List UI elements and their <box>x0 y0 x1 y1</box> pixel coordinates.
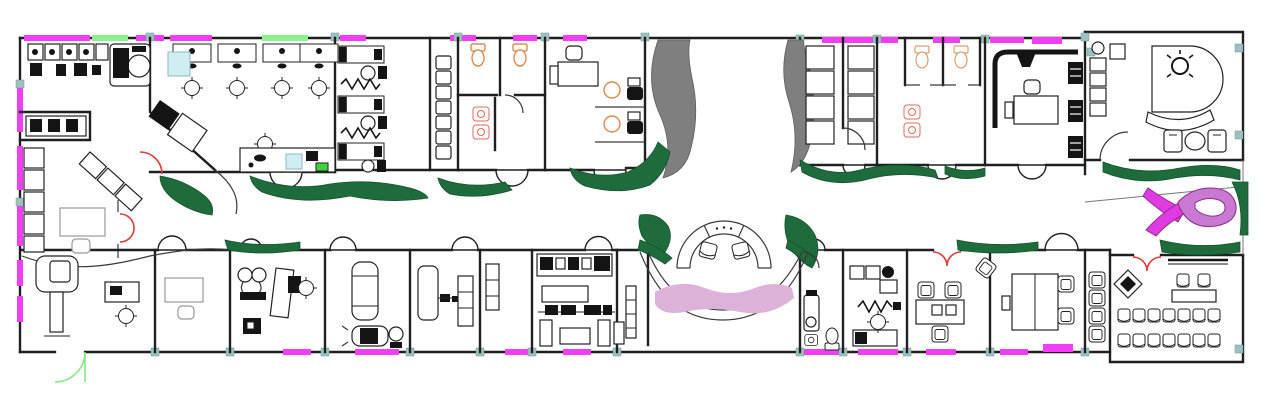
dental-room-1 <box>238 268 317 334</box>
courtyard-trees <box>651 40 813 178</box>
washroom-bottom <box>803 252 839 350</box>
storage-columns <box>806 46 874 150</box>
restroom-right <box>904 46 968 137</box>
toilet <box>513 44 527 66</box>
reception-chair <box>699 241 718 259</box>
wall-screen <box>168 52 190 76</box>
sink <box>904 123 920 137</box>
dental-chair-unit <box>342 326 403 348</box>
monitor-counter <box>26 116 86 136</box>
left-lounge-area <box>24 148 162 253</box>
dental-room-2 <box>342 262 403 348</box>
corridor-door-bumps <box>22 165 1078 267</box>
chair <box>566 46 582 60</box>
hallway-chairs <box>1089 272 1105 342</box>
green-window <box>92 35 128 41</box>
projector <box>1114 270 1142 298</box>
red-door-swing <box>1133 257 1161 271</box>
conference-room <box>1114 257 1228 347</box>
office-bottom-right <box>1002 274 1074 330</box>
awareness-ribbon <box>1143 188 1236 236</box>
chair <box>72 239 90 253</box>
chair <box>178 306 194 319</box>
executive-suite <box>1090 42 1226 160</box>
desk <box>558 62 598 86</box>
lab-table <box>560 328 590 344</box>
red-door-swing <box>933 252 961 266</box>
consult-office-bl <box>165 278 203 319</box>
green-window <box>262 35 308 41</box>
coffee-set <box>1164 130 1226 152</box>
patient-chair <box>882 266 894 278</box>
desk <box>165 278 203 302</box>
wheelchair <box>627 121 643 134</box>
toilet <box>954 46 968 68</box>
imaging-room <box>36 256 139 382</box>
desk <box>1014 96 1058 124</box>
green-appliance <box>316 163 328 171</box>
treatment-room <box>338 46 387 172</box>
bench-seating <box>79 152 142 211</box>
exam-table <box>352 262 378 320</box>
floor-plan-canvas <box>0 0 1273 406</box>
door-swing <box>1100 132 1128 160</box>
xray-table <box>418 266 438 320</box>
reception-chair <box>731 241 750 259</box>
exam-room-bottom <box>850 266 901 346</box>
stool <box>604 82 620 98</box>
xray-room <box>418 266 473 326</box>
consultation-room <box>916 252 997 342</box>
door-swing <box>505 95 523 113</box>
clinic-floor-plan-drawing <box>0 0 1273 406</box>
large-lab-machine <box>110 44 150 86</box>
cabinet <box>458 276 473 326</box>
audience-row-2 <box>1118 334 1220 347</box>
toilet <box>471 44 485 66</box>
exam-office-left <box>550 46 643 134</box>
green-entry-door <box>55 352 85 382</box>
audience-row-1 <box>1118 309 1220 322</box>
toilet <box>825 328 839 350</box>
chair <box>1024 80 1040 94</box>
tv-mount <box>1016 52 1036 67</box>
sink <box>805 334 818 345</box>
red-door-swing <box>120 214 134 242</box>
lab-room-bottom <box>537 254 615 346</box>
monitor <box>110 286 122 295</box>
executive-chair <box>1172 58 1188 74</box>
kitchenette-counter <box>240 148 335 172</box>
cabinet <box>486 264 499 310</box>
lab-island <box>542 286 588 302</box>
desk <box>60 208 105 236</box>
sink <box>473 107 489 121</box>
lab-room <box>26 44 150 136</box>
plant-pot <box>1092 42 1104 54</box>
accent-floor-patch <box>655 284 794 314</box>
red-door-swing <box>140 152 162 174</box>
sink <box>473 125 489 139</box>
utility-room <box>486 264 499 310</box>
staff-room <box>146 44 338 172</box>
tilted-chair <box>975 257 997 279</box>
locker-column <box>436 56 451 159</box>
stool <box>604 116 620 132</box>
wheelchair <box>627 87 643 100</box>
mammography-machine <box>36 256 78 336</box>
office-right <box>995 52 1083 158</box>
reception-desk <box>677 221 771 268</box>
toilet <box>915 46 929 68</box>
presenter-table <box>1172 290 1216 302</box>
tilted-desk-pair <box>146 98 207 151</box>
executive-desk <box>1146 46 1223 131</box>
sink <box>904 105 920 119</box>
side-table <box>1110 44 1125 59</box>
